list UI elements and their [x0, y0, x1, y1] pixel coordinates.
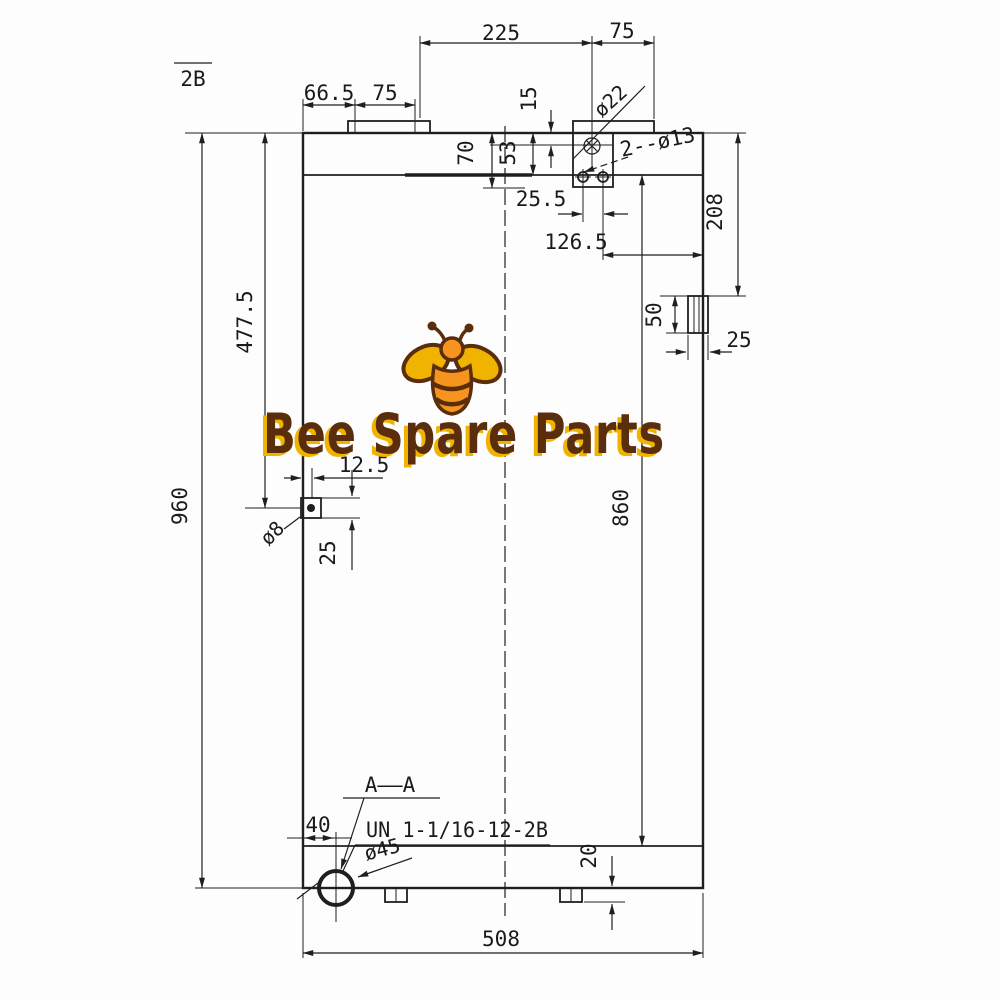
thread-class-note: 2B [180, 67, 205, 91]
dim-bracket-depth: 70 [454, 140, 478, 165]
side-port-tab [688, 296, 708, 333]
dim-port-span: 225 [482, 21, 520, 45]
filler-cap [348, 121, 430, 133]
bee-icon [397, 322, 506, 415]
bolt-holes-callout: 2--ø13 [618, 123, 697, 162]
radiator-technical-drawing: 2B 66.5 75 225 75 15 53 70 ø22 2--ø13 25… [0, 0, 1000, 1000]
dim-drain-block: 25 [316, 540, 340, 565]
dim-tank-depth: 53 [496, 140, 520, 165]
bee-spare-parts-logo: Bee Spare Parts Bee Spare Parts [259, 322, 665, 470]
drain-port-leader [284, 517, 300, 529]
section-label: A——A [365, 773, 416, 797]
dim-drain-height: 477.5 [233, 290, 257, 353]
dimension-labels: 2B 66.5 75 225 75 15 53 70 ø22 2--ø13 25… [168, 19, 752, 951]
dim-total-height: 960 [168, 487, 192, 525]
dim-foot-height: 20 [577, 843, 601, 868]
drawing-canvas: 2B 66.5 75 225 75 15 53 70 ø22 2--ø13 25… [0, 0, 1000, 1000]
dim-total-width: 508 [482, 927, 520, 951]
dim-bracket-height: 208 [703, 193, 727, 231]
mounting-feet [385, 888, 582, 902]
dim-core-height: 860 [609, 489, 633, 527]
dim-port-to-edge: 75 [609, 19, 634, 43]
logo-text: Bee Spare Parts [263, 402, 665, 466]
dim-side-port-width: 25 [726, 328, 751, 352]
dim-cap-offset: 66.5 [304, 81, 355, 105]
dimension-lines [202, 43, 738, 953]
drain-port-callout: ø8 [255, 516, 289, 550]
radiator-body [303, 133, 703, 888]
section-leader [341, 798, 364, 869]
dim-port-depth: 15 [517, 86, 541, 111]
dim-cap-width: 75 [372, 81, 397, 105]
dim-hole-spacing: 25.5 [516, 187, 567, 211]
part-outline [297, 121, 708, 922]
leader-lines [174, 63, 645, 877]
dim-hole-to-edge: 126.5 [544, 230, 607, 254]
bolt-holes [575, 169, 611, 185]
dim-side-port-height: 50 [642, 302, 666, 327]
inlet-port-callout: ø22 [589, 80, 632, 122]
top-mounting-plate [573, 121, 654, 133]
dim-outlet-offset: 40 [305, 813, 330, 837]
